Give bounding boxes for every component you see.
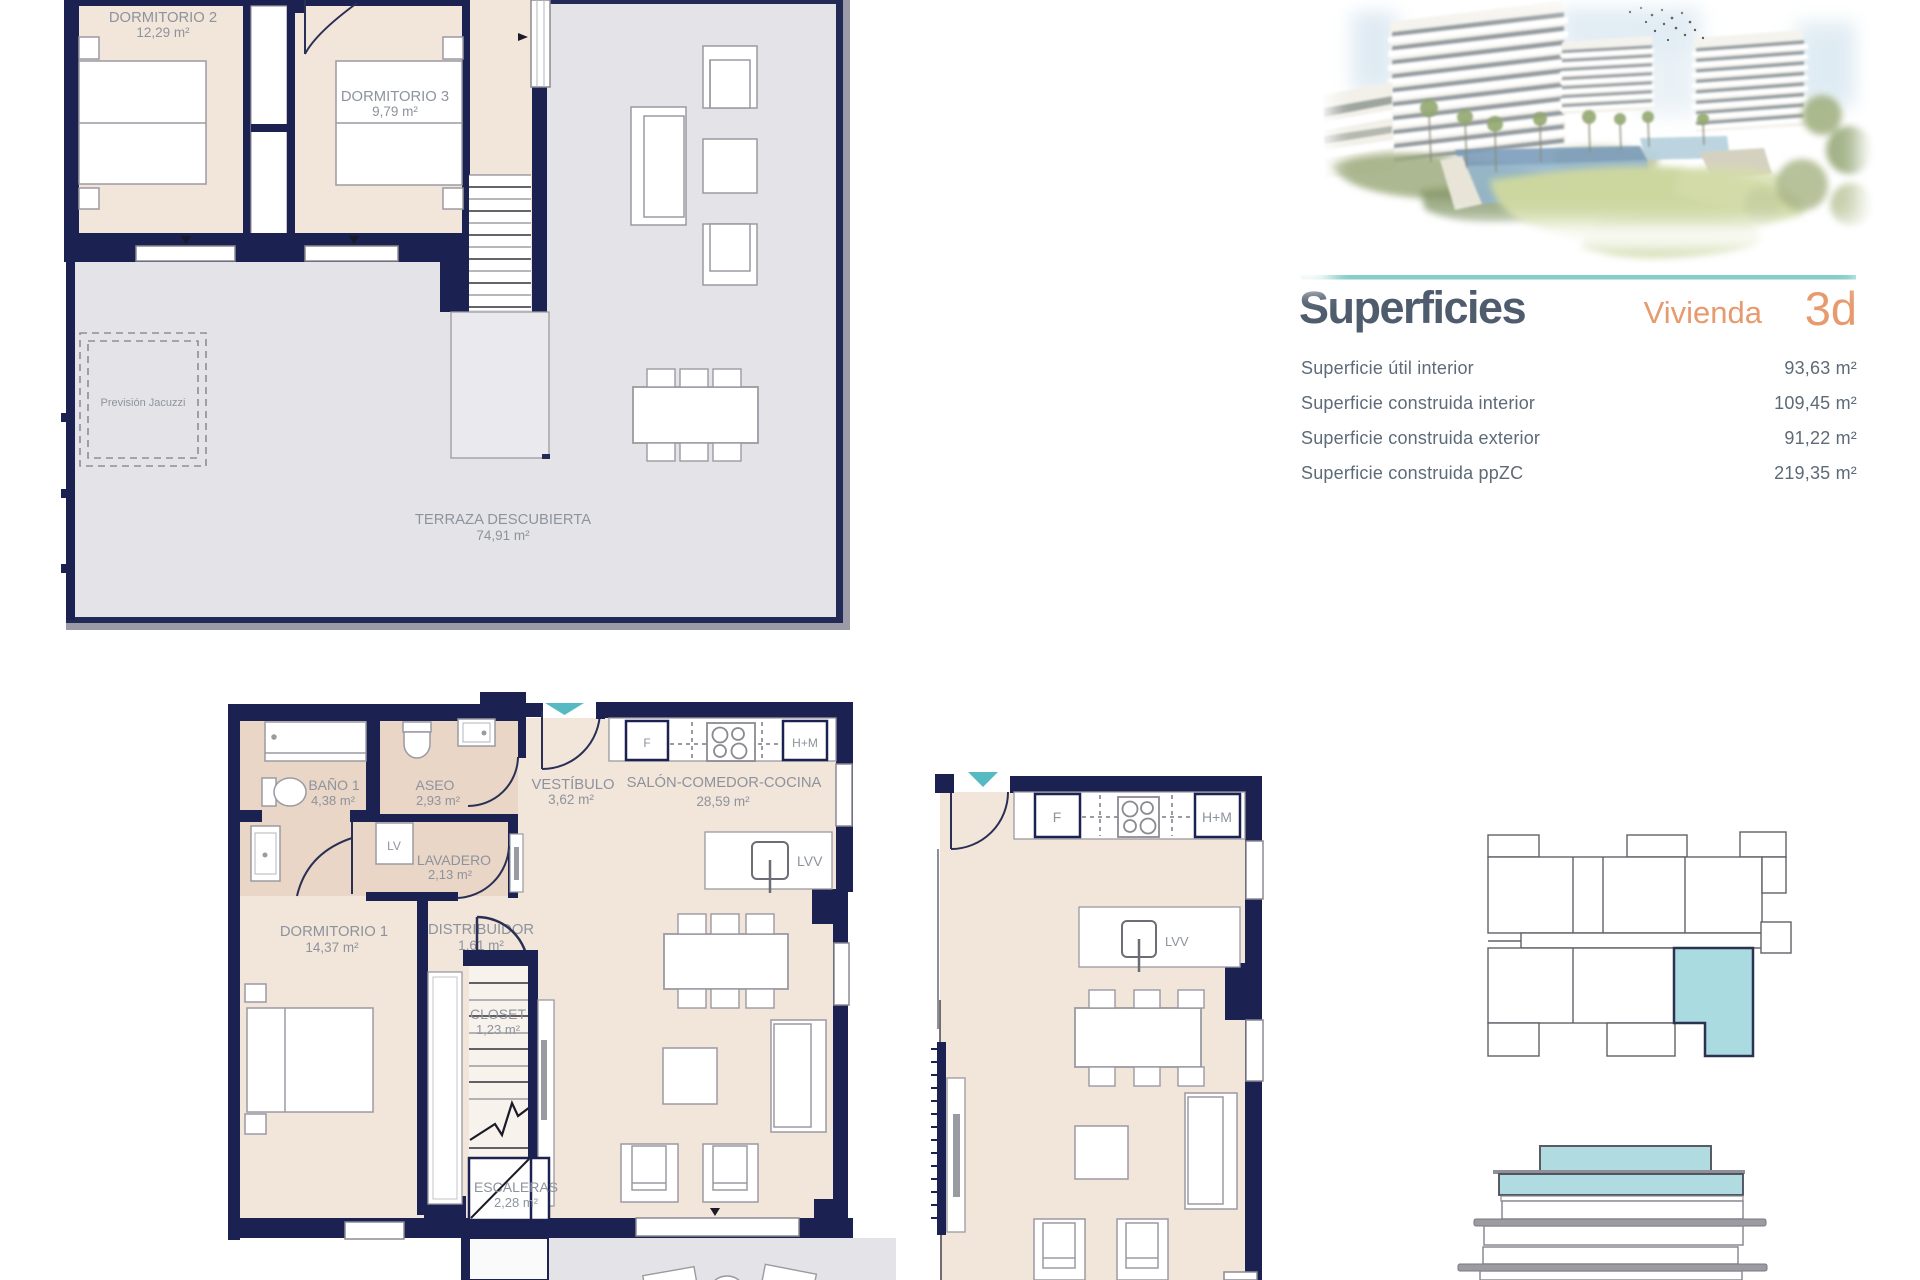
svg-text:DISTRIBUIDOR: DISTRIBUIDOR (428, 922, 534, 938)
svg-text:LAVADERO: LAVADERO (417, 852, 491, 868)
svg-text:74,91 m²: 74,91 m² (476, 528, 530, 543)
svg-text:ASEO: ASEO (416, 777, 455, 793)
svg-text:BAÑO 1: BAÑO 1 (308, 777, 360, 793)
svg-text:4,38 m²: 4,38 m² (311, 793, 356, 808)
svg-text:Vivienda: Vivienda (1644, 295, 1763, 330)
svg-text:2,28 m²: 2,28 m² (494, 1195, 539, 1210)
svg-text:Superficie construida exterior: Superficie construida exterior (1301, 428, 1540, 448)
svg-text:H+M: H+M (1202, 809, 1232, 825)
svg-text:219,35 m²: 219,35 m² (1774, 463, 1857, 483)
svg-text:2,13 m²: 2,13 m² (428, 867, 473, 882)
svg-text:F: F (1053, 809, 1062, 825)
svg-text:LV: LV (387, 839, 401, 853)
svg-text:12,29 m²: 12,29 m² (136, 25, 190, 40)
svg-text:3d: 3d (1805, 282, 1857, 335)
svg-text:SALÓN-COMEDOR-COCINA: SALÓN-COMEDOR-COCINA (627, 774, 822, 791)
svg-text:Superficie útil interior: Superficie útil interior (1301, 358, 1474, 378)
svg-text:F: F (643, 736, 650, 750)
svg-text:3,62 m²: 3,62 m² (548, 792, 594, 807)
svg-text:Superficie construida ppZC: Superficie construida ppZC (1301, 463, 1523, 483)
svg-text:1,23 m²: 1,23 m² (476, 1022, 521, 1037)
svg-text:Superficie construida interior: Superficie construida interior (1301, 393, 1535, 413)
svg-text:Previsión Jacuzzi: Previsión Jacuzzi (101, 397, 186, 409)
svg-text:9,79 m²: 9,79 m² (372, 104, 418, 119)
svg-text:VESTÍBULO: VESTÍBULO (531, 776, 614, 793)
svg-text:ESCALERAS: ESCALERAS (474, 1179, 558, 1195)
svg-text:93,63 m²: 93,63 m² (1784, 358, 1857, 378)
svg-text:LVV: LVV (1165, 934, 1189, 949)
svg-text:LVV: LVV (797, 853, 823, 869)
svg-text:2,93 m²: 2,93 m² (416, 793, 461, 808)
svg-text:DORMITORIO 3: DORMITORIO 3 (341, 89, 449, 105)
svg-text:DORMITORIO 1: DORMITORIO 1 (280, 924, 388, 940)
svg-text:109,45 m²: 109,45 m² (1774, 393, 1857, 413)
svg-text:DORMITORIO 2: DORMITORIO 2 (109, 10, 217, 26)
svg-text:Superficies: Superficies (1299, 282, 1526, 333)
svg-text:H+M: H+M (792, 736, 818, 750)
svg-text:14,37 m²: 14,37 m² (305, 940, 359, 955)
svg-text:CLOSET: CLOSET (470, 1006, 526, 1022)
svg-text:91,22 m²: 91,22 m² (1784, 428, 1857, 448)
svg-text:28,59 m²: 28,59 m² (696, 794, 750, 809)
svg-text:TERRAZA DESCUBIERTA: TERRAZA DESCUBIERTA (415, 512, 591, 528)
